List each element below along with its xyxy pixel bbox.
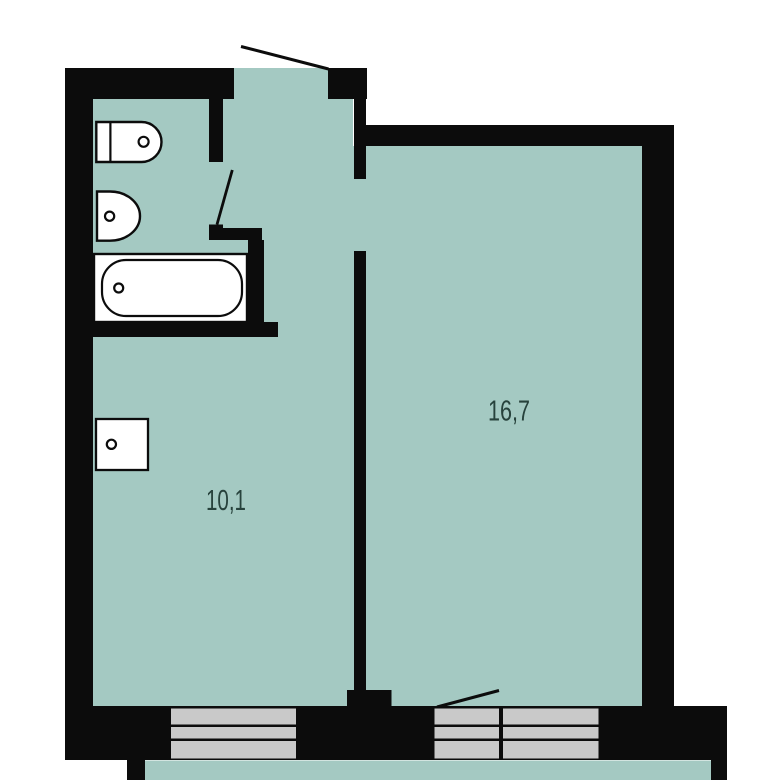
svg-text:16,7: 16,7 xyxy=(488,396,530,428)
svg-text:10,1: 10,1 xyxy=(206,485,246,517)
